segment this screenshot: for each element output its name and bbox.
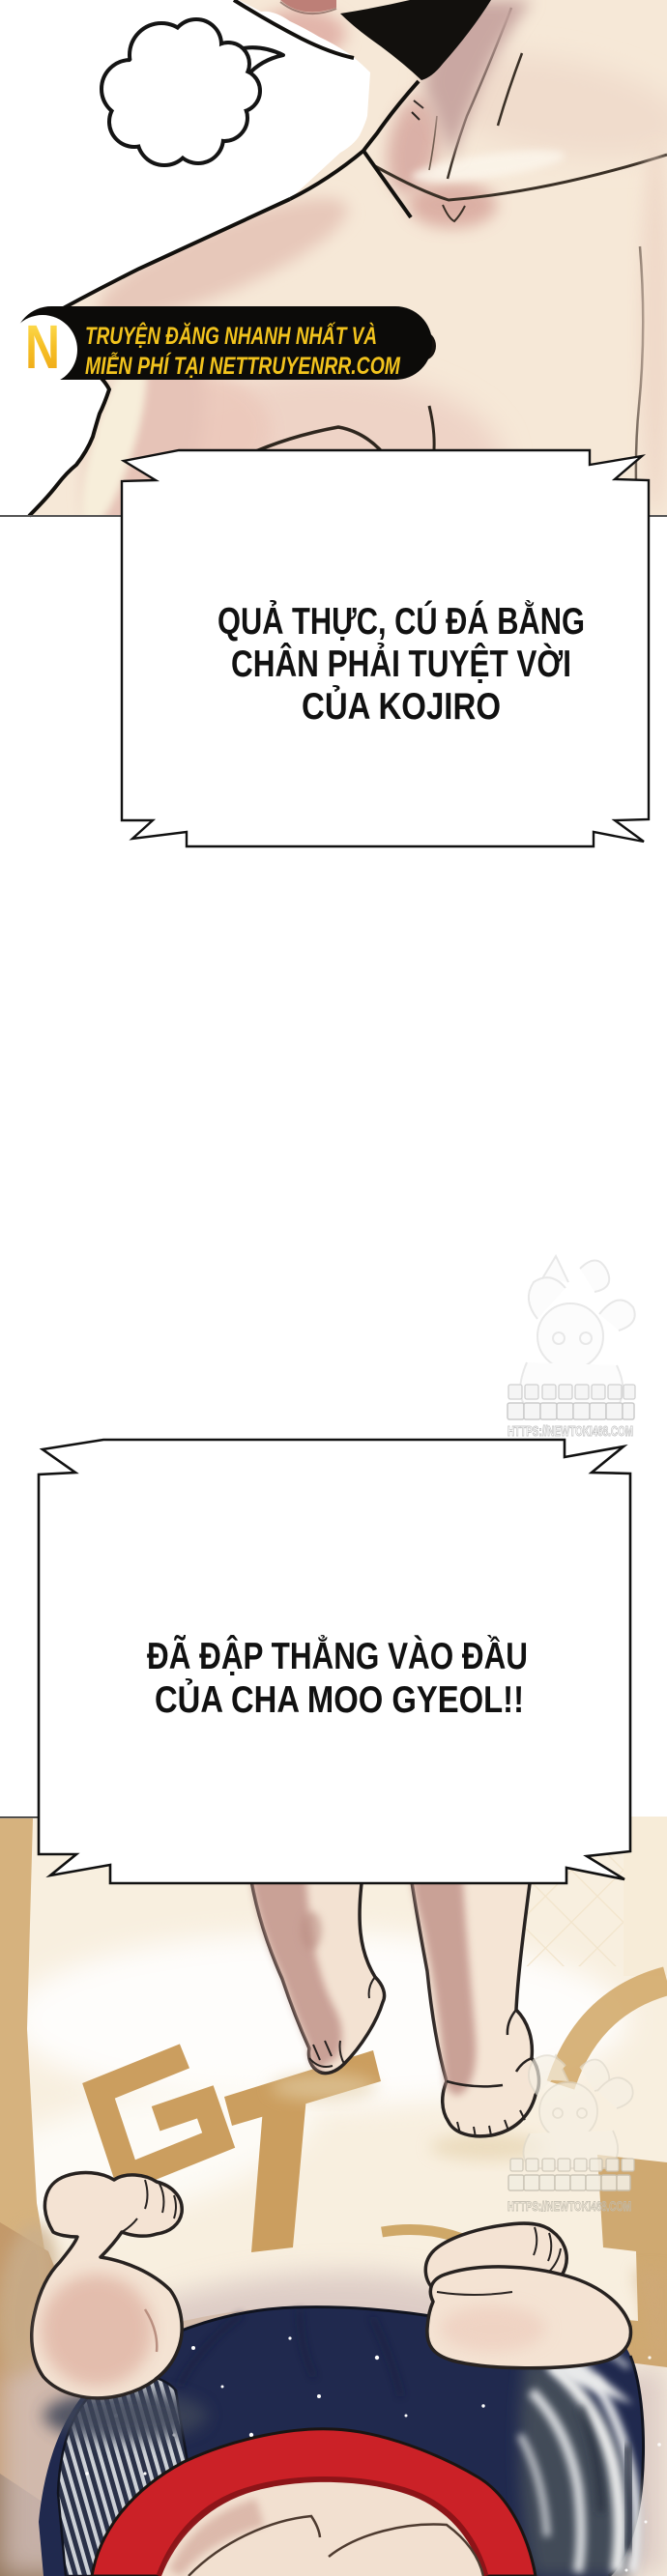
- svg-text:TRUYỆN ĐĂNG NHANH NHẤT VÀ: TRUYỆN ĐĂNG NHANH NHẤT VÀ: [85, 321, 377, 350]
- svg-text:CHÂN PHẢI TUYỆT VỜI: CHÂN PHẢI TUYỆT VỜI: [231, 643, 571, 685]
- svg-text:HTTPS://NEWTOKI468.COM: HTTPS://NEWTOKI468.COM: [507, 2198, 631, 2214]
- svg-text:CỦA KOJIRO: CỦA KOJIRO: [302, 685, 501, 728]
- svg-text:N: N: [25, 312, 60, 382]
- svg-text:MIỄN PHÍ TẠI NETTRUYENRR.COM: MIỄN PHÍ TẠI NETTRUYENRR.COM: [85, 351, 401, 380]
- svg-text:HTTPS://NEWTOKI468.COM: HTTPS://NEWTOKI468.COM: [507, 1424, 633, 1440]
- svg-text:ĐÃ ĐẬP THẲNG VÀO ĐẦU: ĐÃ ĐẬP THẲNG VÀO ĐẦU: [147, 1634, 528, 1677]
- svg-text:CỦA CHA MOO GYEOL!!: CỦA CHA MOO GYEOL!!: [155, 1678, 524, 1721]
- svg-text:QUẢ THỰC, CÚ ĐÁ BẰNG: QUẢ THỰC, CÚ ĐÁ BẰNG: [217, 600, 585, 643]
